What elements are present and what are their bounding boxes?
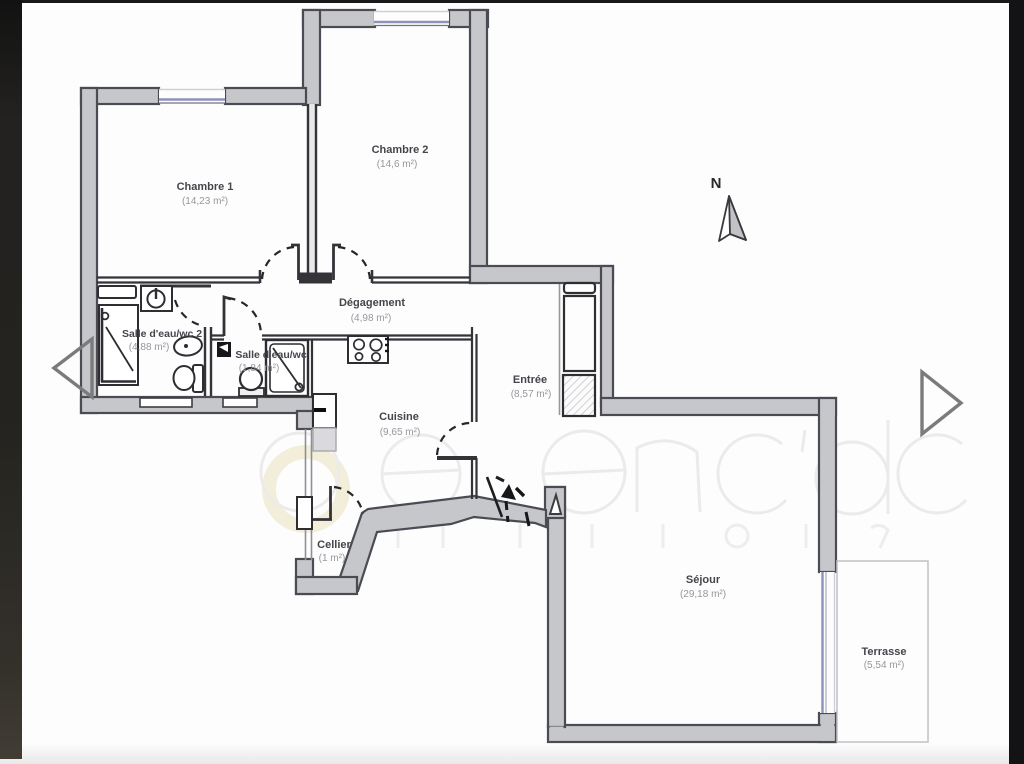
svg-text:Cellier: Cellier (317, 539, 351, 551)
svg-text:(5,54 m²): (5,54 m²) (864, 660, 905, 671)
svg-text:N: N (711, 175, 722, 192)
svg-text:Chambre 2: Chambre 2 (372, 144, 429, 156)
svg-text:Séjour: Séjour (686, 574, 721, 586)
svg-text:(8,57 m²): (8,57 m²) (511, 389, 552, 400)
svg-text:(1,84 m²): (1,84 m²) (239, 363, 280, 374)
svg-text:Salle d'eau/wc 2: Salle d'eau/wc 2 (122, 328, 202, 340)
svg-text:Entrée: Entrée (513, 374, 547, 386)
svg-text:Cuisine: Cuisine (379, 411, 419, 423)
svg-text:(4,88 m²): (4,88 m²) (129, 342, 170, 353)
svg-text:(1 m²): (1 m²) (319, 553, 346, 564)
svg-text:(29,18 m²): (29,18 m²) (680, 589, 726, 600)
svg-text:Dégagement: Dégagement (339, 297, 405, 309)
svg-text:(14,23 m²): (14,23 m²) (182, 196, 228, 207)
svg-text:Terrasse: Terrasse (861, 646, 906, 658)
svg-text:(4,98 m²): (4,98 m²) (351, 313, 392, 324)
svg-text:Salle d'eau/wc: Salle d'eau/wc (235, 349, 307, 361)
svg-text:(14,6 m²): (14,6 m²) (377, 159, 418, 170)
svg-text:Chambre 1: Chambre 1 (177, 181, 234, 193)
svg-text:(9,65 m²): (9,65 m²) (380, 427, 421, 438)
